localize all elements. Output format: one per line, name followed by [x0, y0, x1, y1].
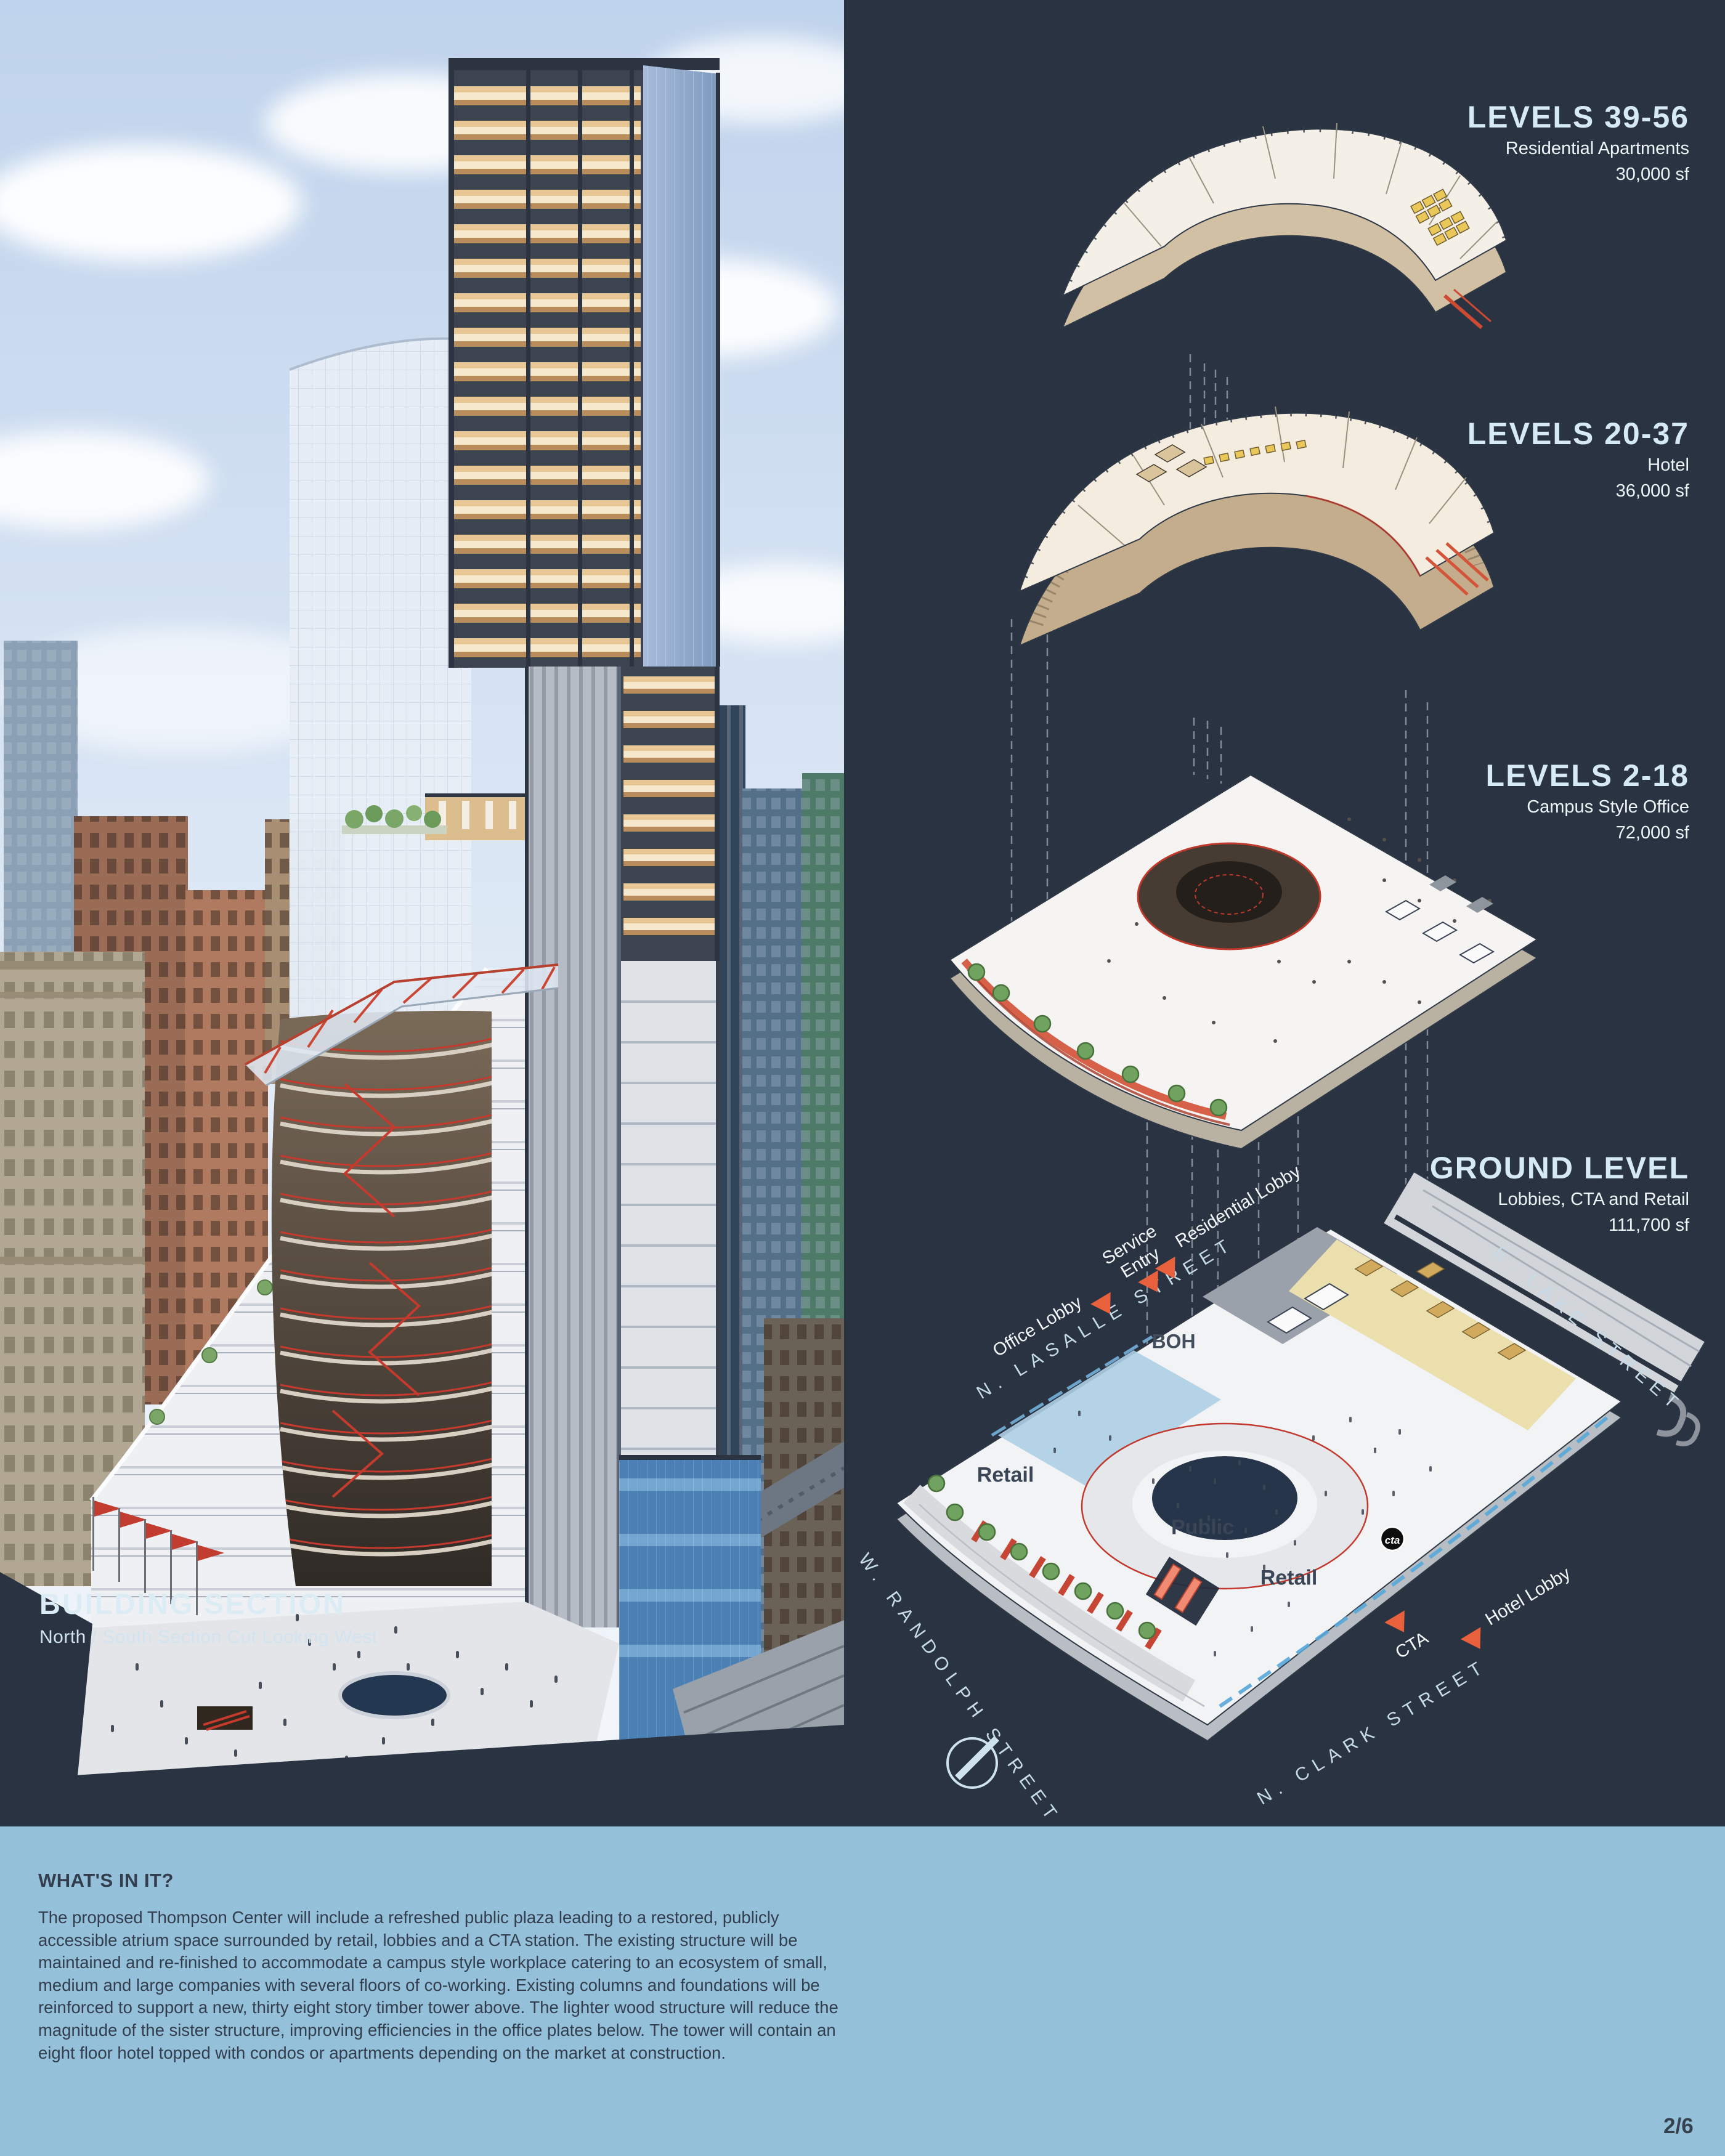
- whats-in-it-heading: WHAT'S IN IT?: [38, 1870, 174, 1892]
- level-area: 111,700 sf: [1430, 1214, 1689, 1237]
- floor-plate-levels-2-18: [950, 775, 1537, 1149]
- level-area: 72,000 sf: [1486, 822, 1689, 845]
- whats-in-it-body: The proposed Thompson Center will includ…: [38, 1907, 858, 2064]
- public-label: Public: [1171, 1516, 1234, 1540]
- timber-tower: [448, 58, 720, 668]
- boh-label: BOH: [1151, 1331, 1195, 1353]
- atrium: [272, 1011, 492, 1586]
- floor-plate-levels-39-56: [1063, 123, 1506, 328]
- level-use: Campus Style Office: [1486, 796, 1689, 819]
- building-section-subtitle: North / South Section Cut Looking West: [39, 1627, 378, 1648]
- retail-east-label: Retail: [1260, 1566, 1318, 1591]
- level-label-ground: GROUND LEVEL Lobbies, CTA and Retail 111…: [1430, 1151, 1689, 1237]
- level-use: Lobbies, CTA and Retail: [1430, 1188, 1689, 1211]
- level-use: Hotel: [1467, 454, 1689, 477]
- exploded-axon-diagram: cta: [844, 0, 1725, 1826]
- floor-plate-levels-20-37: [1020, 407, 1494, 646]
- level-area: 36,000 sf: [1467, 480, 1689, 503]
- plaza-pool: [340, 1673, 448, 1717]
- level-title: LEVELS 39-56: [1467, 100, 1689, 134]
- level-use: Residential Apartments: [1467, 137, 1689, 160]
- svg-text:cta: cta: [1385, 1534, 1400, 1546]
- level-label-2-18: LEVELS 2-18 Campus Style Office 72,000 s…: [1486, 758, 1689, 845]
- ground-level-plan: cta: [896, 1172, 1705, 1741]
- cta-logo: cta: [1381, 1527, 1404, 1550]
- level-title: LEVELS 2-18: [1486, 758, 1689, 793]
- building-section-caption: BUILDING SECTION North / South Section C…: [39, 1587, 378, 1648]
- building-section-render: [0, 0, 844, 1826]
- building-section-title: BUILDING SECTION: [39, 1587, 378, 1621]
- level-label-20-37: LEVELS 20-37 Hotel 36,000 sf: [1467, 416, 1689, 503]
- level-area: 30,000 sf: [1467, 163, 1689, 186]
- presentation-page: { "building_section": { "title": "BUILDI…: [0, 0, 1725, 2156]
- level-title: LEVELS 20-37: [1467, 416, 1689, 451]
- level-title: GROUND LEVEL: [1430, 1151, 1689, 1185]
- level-label-39-56: LEVELS 39-56 Residential Apartments 30,0…: [1467, 100, 1689, 186]
- retail-west-label: Retail: [977, 1464, 1034, 1488]
- page-number: 2/6: [1663, 2114, 1694, 2139]
